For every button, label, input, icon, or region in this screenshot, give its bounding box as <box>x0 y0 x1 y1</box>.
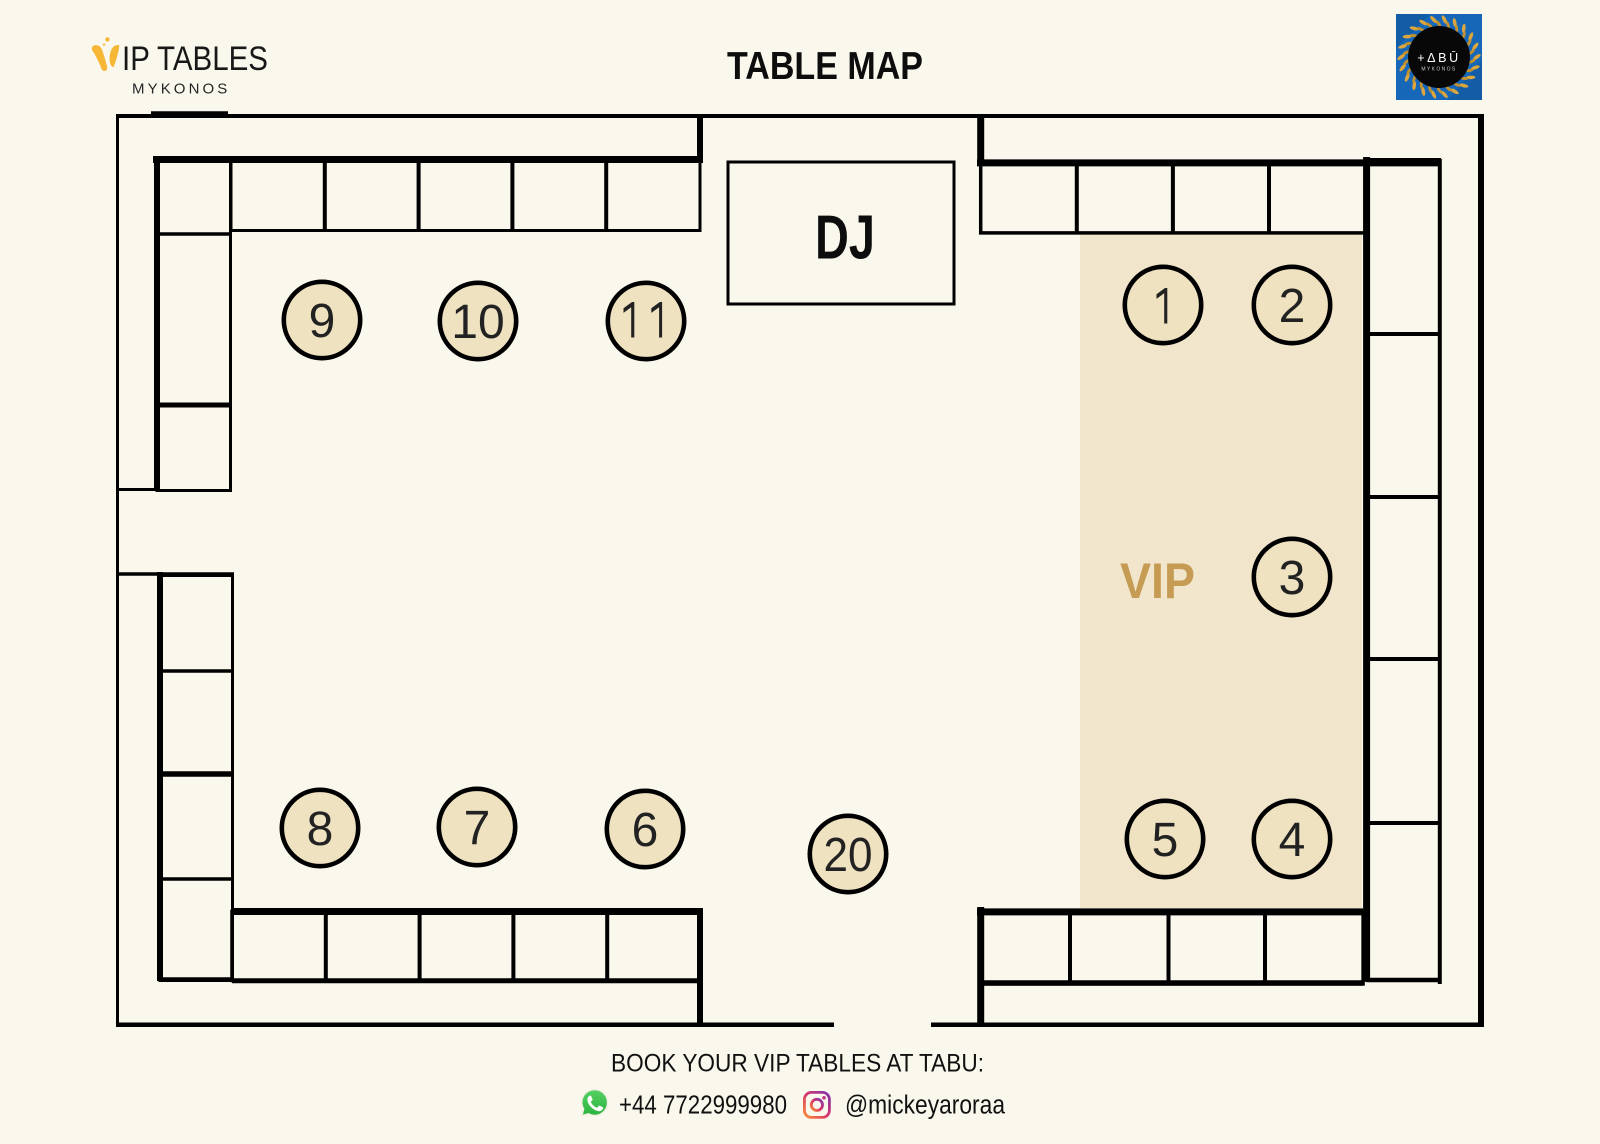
svg-text:9: 9 <box>309 295 336 348</box>
svg-text:2: 2 <box>1279 280 1306 333</box>
svg-text:7: 7 <box>464 802 491 855</box>
svg-text:+44 7722999980: +44 7722999980 <box>619 1092 787 1120</box>
svg-text:8: 8 <box>307 803 334 856</box>
svg-text:6: 6 <box>632 804 659 857</box>
svg-text:20: 20 <box>824 829 873 882</box>
svg-text:VIP: VIP <box>1120 552 1195 609</box>
svg-text:DJ: DJ <box>815 204 875 273</box>
svg-text:@mickeyaroraa: @mickeyaroraa <box>845 1092 1006 1120</box>
svg-text:10: 10 <box>451 296 504 349</box>
svg-text:4: 4 <box>1279 814 1306 867</box>
svg-text:IP TABLES: IP TABLES <box>122 40 268 78</box>
svg-text:MYKONOS: MYKONOS <box>132 81 230 98</box>
svg-text:5: 5 <box>1152 814 1179 867</box>
svg-text:TABLE MAP: TABLE MAP <box>727 45 923 88</box>
svg-text:MYKONOS: MYKONOS <box>1421 67 1456 73</box>
svg-text:BOOK YOUR VIP TABLES AT TABU:: BOOK YOUR VIP TABLES AT TABU: <box>611 1050 984 1078</box>
svg-text:3: 3 <box>1279 552 1306 605</box>
svg-text:+ΔBŪ: +ΔBŪ <box>1417 51 1460 65</box>
